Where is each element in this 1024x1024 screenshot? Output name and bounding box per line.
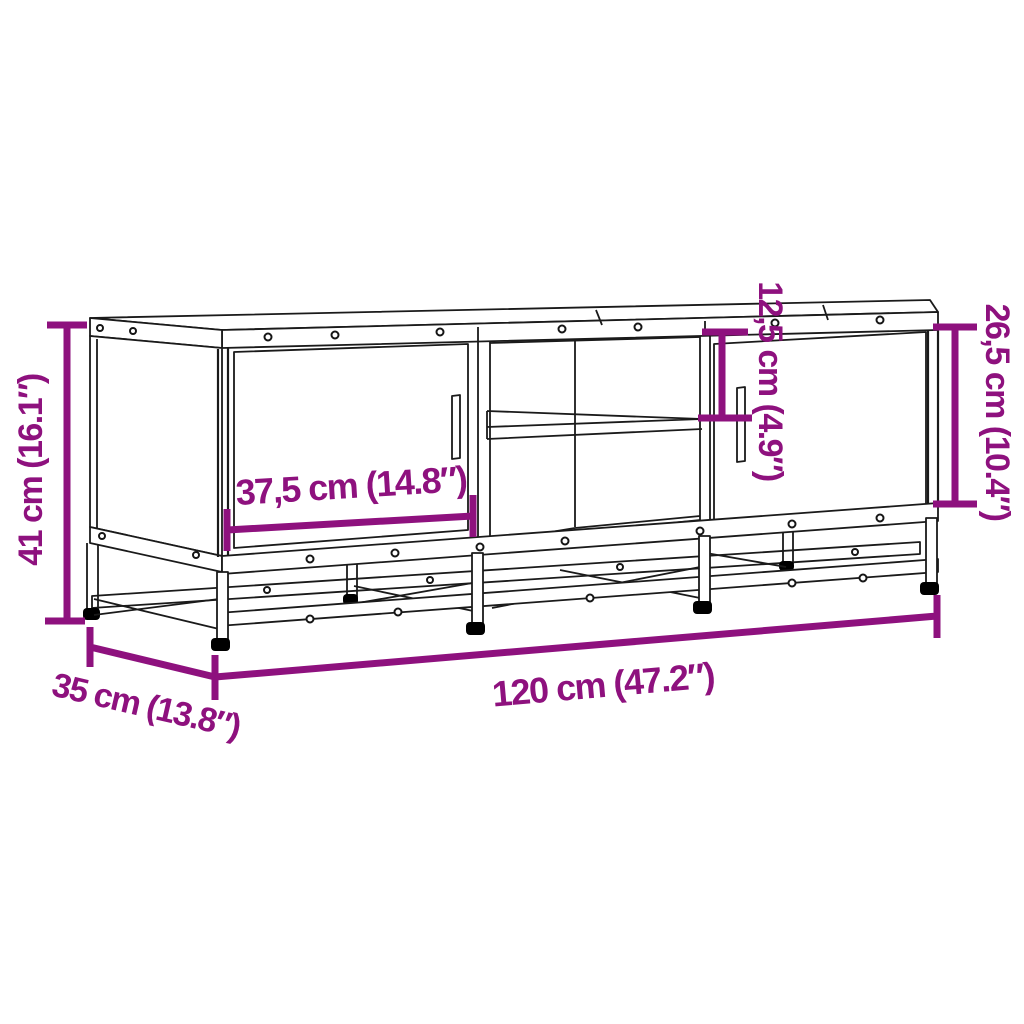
product-dimension-diagram: 41 cm (16.1″) 37,5 cm (14.8″) 12,5 cm (4… [0,0,1024,1024]
middle-shelf [487,411,702,439]
door-left-handle [452,395,460,459]
open-compartment [487,337,702,542]
cabinet-drawing [0,0,1024,1024]
door-right-handle [737,387,745,462]
overall-depth-dimension-line [90,627,215,677]
overall-height-dimension-line [45,325,87,621]
door-opening-height-dimension-line [933,327,977,504]
foot [693,601,712,614]
cabinet-side-panel [90,336,222,572]
compartment-height-label: 12,5 cm (4.9″) [753,281,787,480]
foot [466,622,485,635]
foot [920,582,939,595]
foot [211,638,230,651]
overall-height-label: 41 cm (16.1″) [14,374,48,565]
door-opening-height-label: 26,5 cm (10.4″) [980,304,1014,521]
door-right [714,332,926,521]
